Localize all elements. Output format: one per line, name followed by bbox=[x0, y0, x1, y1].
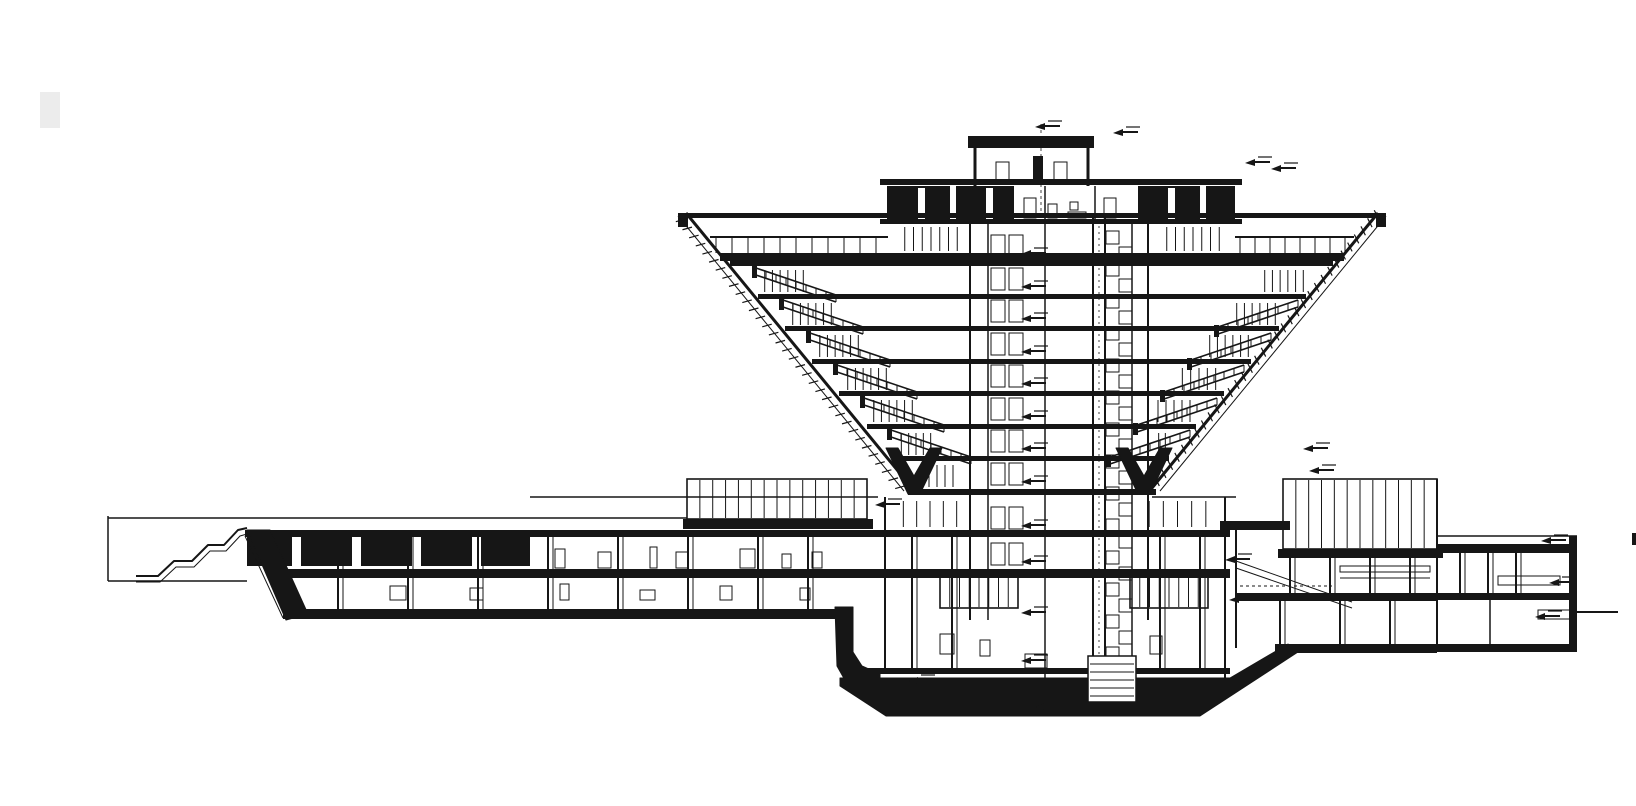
core-door bbox=[1009, 365, 1023, 387]
podium-deck-slab bbox=[245, 530, 1230, 537]
left-wing-bottom-slab bbox=[283, 609, 845, 619]
elevation-mark bbox=[1021, 346, 1048, 355]
mark-arrowhead bbox=[1229, 596, 1239, 603]
mark-arrowhead bbox=[1113, 129, 1123, 136]
elevation-mark bbox=[1245, 157, 1272, 166]
core-door bbox=[991, 543, 1005, 565]
page-edge-artifact bbox=[40, 92, 60, 128]
annex-floor-slab bbox=[1437, 593, 1577, 600]
core-door bbox=[1009, 300, 1023, 322]
slope-funnel-column bbox=[886, 448, 942, 494]
stair-newel bbox=[779, 298, 784, 310]
mark-arrowhead bbox=[1245, 159, 1255, 166]
monitor-sill-slab bbox=[683, 519, 873, 529]
elevation-mark bbox=[1021, 411, 1048, 420]
interior-fixture bbox=[598, 552, 611, 568]
core-door bbox=[1009, 430, 1023, 452]
interior-fixture bbox=[782, 554, 791, 568]
elevation-mark bbox=[875, 499, 902, 508]
mark-arrowhead bbox=[1271, 165, 1281, 172]
window-slit bbox=[292, 537, 301, 566]
shaft-ladder bbox=[1119, 407, 1132, 420]
core-door bbox=[991, 507, 1005, 529]
shaft-ladder bbox=[1106, 231, 1119, 244]
elevation-mark bbox=[1271, 163, 1298, 172]
washroom-fixture bbox=[1070, 202, 1078, 210]
stair-newel bbox=[1160, 390, 1165, 402]
core-door bbox=[1009, 268, 1023, 290]
elevation-mark bbox=[1021, 378, 1048, 387]
interior-fixture bbox=[560, 584, 569, 600]
interior-fixture bbox=[720, 586, 732, 600]
mark-arrowhead bbox=[875, 501, 885, 508]
buried-clerestory-band bbox=[247, 537, 530, 566]
elevation-mark bbox=[1021, 443, 1048, 452]
mark-arrowhead bbox=[1021, 657, 1031, 664]
core-door bbox=[1009, 543, 1023, 565]
shaft-ladder bbox=[1119, 503, 1132, 516]
upper-floor-slab bbox=[880, 219, 1242, 224]
elevation-mark bbox=[1021, 313, 1048, 322]
interior-fixture bbox=[640, 590, 655, 600]
annex-roof-slab bbox=[1437, 544, 1577, 553]
page-edge-mark bbox=[1632, 533, 1636, 545]
core-door bbox=[991, 333, 1005, 355]
stair-newel bbox=[860, 396, 865, 408]
interior-fixture bbox=[740, 549, 755, 568]
window-slit bbox=[352, 537, 361, 566]
core-door bbox=[1009, 507, 1023, 529]
core-door-openings bbox=[991, 235, 1023, 565]
stair-newel bbox=[752, 266, 757, 278]
shaft-ladder bbox=[1119, 343, 1132, 356]
elevation-mark bbox=[1021, 281, 1048, 290]
elevation-mark bbox=[1035, 121, 1062, 130]
annex-bottom-slab bbox=[1437, 644, 1577, 652]
interior-fixture bbox=[555, 549, 565, 568]
floor-slab bbox=[730, 261, 1333, 266]
stair-newel bbox=[833, 363, 838, 375]
foundation-block bbox=[840, 644, 1298, 716]
shaft-ladder bbox=[1119, 631, 1132, 644]
roof-deck-slab bbox=[720, 253, 1344, 261]
elevation-mark bbox=[1309, 465, 1336, 474]
elevation-mark bbox=[1021, 556, 1048, 565]
section-drawing: Black-and-white architectural cross-sect… bbox=[40, 16, 1636, 790]
interior-fixture bbox=[676, 552, 688, 568]
annex-counter bbox=[1498, 576, 1560, 585]
shaft-ladder bbox=[1106, 551, 1119, 564]
section-drawing-shapes bbox=[40, 92, 1636, 716]
stair-newel bbox=[1187, 358, 1192, 370]
elevation-mark bbox=[1021, 607, 1048, 616]
mark-arrowhead bbox=[1035, 123, 1045, 130]
stair-newel bbox=[1133, 423, 1138, 435]
core-door bbox=[991, 398, 1005, 420]
elevation-mark bbox=[1021, 520, 1048, 529]
shaft-ladder bbox=[1119, 375, 1132, 388]
core-door bbox=[991, 463, 1005, 485]
shaft-ladder bbox=[1119, 279, 1132, 292]
interior-fixture bbox=[470, 588, 483, 600]
upper-floor-eave bbox=[880, 179, 1242, 185]
elevation-mark bbox=[1303, 443, 1330, 452]
interior-fixture bbox=[650, 547, 657, 568]
penthouse-roof bbox=[968, 136, 1094, 148]
stair-newel bbox=[806, 331, 811, 343]
shaft-ladder bbox=[1106, 583, 1119, 596]
stair-newel bbox=[887, 428, 892, 440]
mark-arrowhead bbox=[1303, 445, 1313, 452]
pyramid-roof-slab bbox=[678, 213, 1386, 218]
elevation-mark bbox=[1113, 127, 1140, 136]
basement-slab-1 bbox=[283, 569, 1230, 578]
terrace-slab bbox=[1220, 521, 1290, 530]
interior-fixture bbox=[390, 586, 406, 600]
floor-slab bbox=[785, 326, 1279, 331]
shaft-ladder bbox=[1119, 311, 1132, 324]
shelf bbox=[1340, 566, 1430, 572]
mark-arrowhead bbox=[1309, 467, 1319, 474]
mark-arrowhead bbox=[1541, 537, 1551, 544]
mark-arrowhead bbox=[1225, 556, 1235, 563]
building-section-figure: Black-and-white architectural cross-sect… bbox=[40, 16, 1636, 790]
floor-slab bbox=[758, 294, 1306, 299]
annex-end-wall bbox=[1569, 536, 1577, 652]
monitor-sill-slab bbox=[1278, 549, 1443, 558]
core-door bbox=[1009, 398, 1023, 420]
core-door bbox=[1009, 463, 1023, 485]
basement-slab-2 bbox=[860, 668, 1230, 674]
core-door bbox=[991, 430, 1005, 452]
penthouse-partition bbox=[1033, 156, 1043, 182]
stair-newel bbox=[1106, 455, 1111, 467]
mark-arrowhead bbox=[1021, 609, 1031, 616]
core-door bbox=[991, 268, 1005, 290]
zigzag-ramp bbox=[136, 528, 247, 576]
core-door bbox=[991, 300, 1005, 322]
elevator-pit bbox=[1088, 656, 1136, 702]
window-slit bbox=[472, 537, 481, 566]
interior-fixture bbox=[980, 640, 990, 656]
right-wing-bottom-slab bbox=[1275, 644, 1437, 653]
right-wing-slab bbox=[1236, 593, 1437, 601]
shaft-ladder bbox=[1106, 615, 1119, 628]
zigzag-ramp bbox=[136, 534, 247, 582]
elevation-mark bbox=[1021, 476, 1048, 485]
stair-newel bbox=[1214, 325, 1219, 337]
core-door bbox=[1009, 333, 1023, 355]
core-door bbox=[991, 365, 1005, 387]
